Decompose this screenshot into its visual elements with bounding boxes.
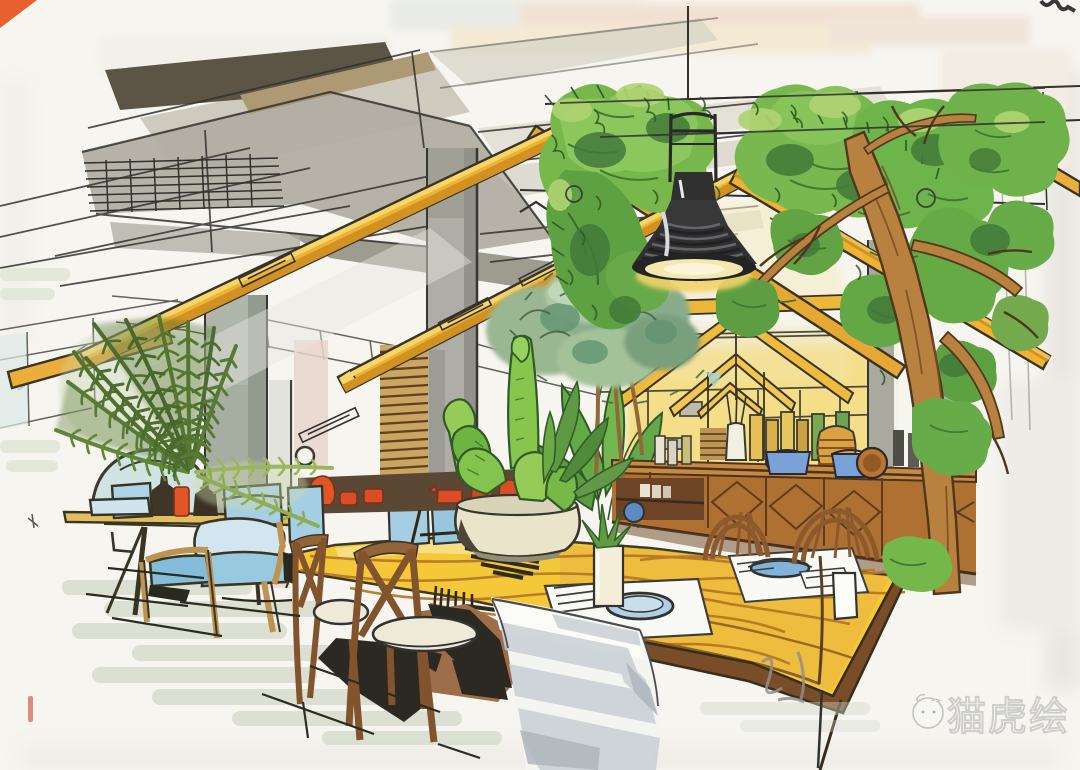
svg-text:猫虎绘: 猫虎绘 — [947, 696, 1070, 739]
